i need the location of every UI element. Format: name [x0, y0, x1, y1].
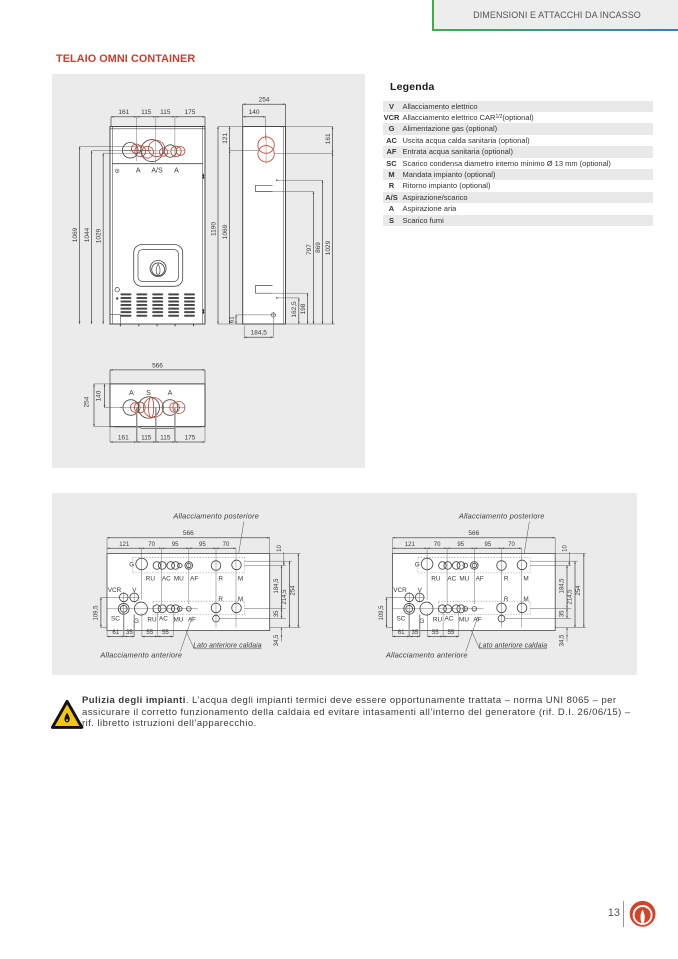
svg-text:95: 95: [457, 542, 464, 548]
svg-text:A: A: [174, 168, 179, 175]
svg-text:RU: RU: [147, 617, 157, 624]
svg-text:109,5: 109,5: [379, 605, 385, 621]
svg-text:254: 254: [291, 585, 297, 596]
svg-text:1029: 1029: [96, 228, 103, 243]
svg-text:55: 55: [146, 630, 153, 636]
svg-text:61: 61: [229, 316, 236, 324]
svg-text:Lato anteriore caldaia: Lato anteriore caldaia: [479, 642, 548, 649]
svg-text:AC: AC: [445, 615, 454, 622]
svg-text:RU: RU: [433, 617, 443, 624]
svg-text:184,5: 184,5: [251, 330, 268, 337]
svg-text:Allacciamento anteriore: Allacciamento anteriore: [385, 651, 468, 660]
svg-text:115: 115: [141, 435, 152, 442]
svg-text:61: 61: [112, 630, 119, 636]
svg-text:95: 95: [485, 542, 492, 548]
svg-text:161: 161: [325, 133, 332, 144]
svg-text:61: 61: [398, 630, 405, 636]
svg-text:35: 35: [412, 630, 419, 636]
svg-text:115: 115: [141, 109, 152, 116]
svg-text:M: M: [523, 596, 528, 603]
svg-text:121: 121: [222, 132, 229, 143]
svg-text:Allacciamento posteriore: Allacciamento posteriore: [172, 512, 259, 521]
svg-text:R: R: [504, 575, 509, 582]
svg-text:869: 869: [315, 242, 322, 253]
svg-text:70: 70: [223, 542, 230, 548]
svg-text:S: S: [146, 390, 151, 397]
svg-text:70: 70: [508, 542, 515, 548]
svg-text:1190: 1190: [210, 222, 217, 236]
svg-text:MU: MU: [174, 616, 184, 623]
svg-text:214,5: 214,5: [282, 589, 288, 605]
svg-text:1029: 1029: [325, 240, 332, 255]
svg-text:184,5: 184,5: [274, 578, 280, 594]
svg-text:121: 121: [119, 542, 130, 548]
svg-text:M: M: [523, 575, 528, 582]
svg-text:M: M: [238, 596, 243, 603]
svg-text:AF: AF: [190, 575, 198, 582]
svg-text:AF: AF: [476, 575, 484, 582]
svg-text:AC: AC: [159, 615, 168, 622]
svg-text:70: 70: [434, 542, 441, 548]
svg-text:566: 566: [468, 530, 479, 537]
svg-text:115: 115: [160, 109, 171, 116]
svg-text:34,5: 34,5: [559, 634, 565, 646]
svg-text:G: G: [129, 562, 134, 569]
svg-text:35: 35: [126, 630, 133, 636]
svg-text:A: A: [136, 168, 141, 175]
svg-text:175: 175: [185, 435, 196, 442]
svg-text:95: 95: [172, 542, 179, 548]
svg-text:55: 55: [432, 630, 439, 636]
svg-text:R: R: [218, 596, 223, 603]
svg-text:35: 35: [274, 610, 280, 617]
svg-text:Allacciamento anteriore: Allacciamento anteriore: [99, 651, 182, 660]
svg-text:RU: RU: [146, 575, 156, 582]
svg-text:G: G: [415, 562, 420, 569]
svg-text:95: 95: [199, 542, 206, 548]
svg-text:35: 35: [559, 610, 565, 617]
svg-text:1069: 1069: [72, 227, 79, 242]
svg-text:A: A: [168, 390, 173, 397]
svg-text:1069: 1069: [222, 224, 229, 239]
svg-text:VCR: VCR: [108, 587, 122, 594]
svg-text:140: 140: [95, 390, 102, 401]
svg-text:AC: AC: [447, 575, 456, 582]
svg-text:AC: AC: [162, 575, 171, 582]
svg-text:254: 254: [259, 97, 270, 104]
svg-text:162,5: 162,5: [291, 301, 298, 318]
svg-text:254: 254: [83, 396, 90, 407]
svg-text:566: 566: [183, 530, 194, 537]
svg-text:RU: RU: [431, 575, 441, 582]
svg-text:A: A: [129, 390, 134, 397]
svg-text:MU: MU: [459, 616, 469, 623]
svg-text:70: 70: [148, 542, 155, 548]
svg-text:254: 254: [576, 585, 582, 596]
svg-text:797: 797: [306, 244, 313, 255]
svg-text:184,5: 184,5: [559, 578, 565, 594]
svg-text:55: 55: [162, 630, 169, 636]
svg-text:Allacciamento posteriore: Allacciamento posteriore: [458, 512, 545, 521]
svg-text:161: 161: [118, 109, 129, 116]
svg-text:MU: MU: [459, 575, 469, 582]
svg-text:115: 115: [160, 435, 171, 442]
svg-text:566: 566: [152, 362, 163, 369]
svg-text:161: 161: [118, 435, 129, 442]
svg-text:SC: SC: [111, 616, 120, 623]
svg-text:198: 198: [300, 303, 307, 314]
svg-text:121: 121: [405, 542, 416, 548]
svg-text:34,5: 34,5: [274, 634, 280, 646]
svg-text:SC: SC: [397, 616, 406, 623]
svg-text:Lato anteriore caldaia: Lato anteriore caldaia: [193, 642, 262, 649]
svg-text:10: 10: [277, 545, 283, 552]
svg-text:VCR: VCR: [393, 587, 407, 594]
svg-text:1044: 1044: [84, 227, 91, 242]
svg-text:MU: MU: [174, 575, 184, 582]
svg-text:R: R: [218, 575, 223, 582]
svg-text:A/S: A/S: [151, 168, 163, 175]
svg-text:55: 55: [448, 630, 455, 636]
svg-text:R: R: [504, 596, 509, 603]
svg-text:175: 175: [185, 109, 196, 116]
svg-text:M: M: [238, 575, 243, 582]
svg-text:140: 140: [249, 109, 260, 116]
svg-text:214,5: 214,5: [567, 589, 573, 605]
svg-text:10: 10: [563, 545, 569, 552]
svg-text:109,5: 109,5: [93, 605, 99, 621]
